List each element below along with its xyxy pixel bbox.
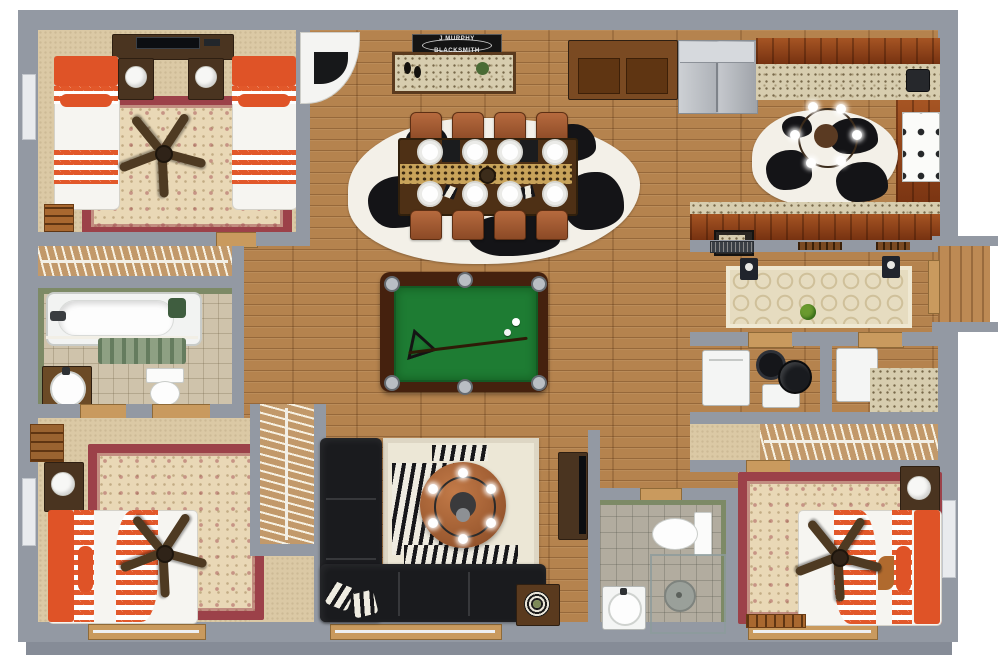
bathroom2-wall-right [726,488,738,622]
pool-pocket [457,379,473,395]
queen-bed-headboard [48,510,74,622]
foundation-edge [26,642,952,655]
hutch-door [626,58,668,94]
pool-pocket [384,375,400,391]
patio-door-frame [330,624,502,640]
queen-bed-pillow [78,546,93,592]
wine-bottle [414,66,421,78]
shower-drain [676,592,682,598]
twin-bed-left-blanket [54,56,118,86]
coffee-maker [906,69,930,92]
bathtub-basin [58,300,174,336]
wall-sconce [882,256,900,278]
air-vent [710,241,754,253]
utility-wall-bottom [690,412,938,424]
dinner-plate [462,139,488,165]
pool-pocket [531,276,547,292]
entry-wall-cap-top [932,236,998,246]
zebra-rug-panel [432,445,488,461]
sofa-seam [468,572,470,616]
dinner-plate [497,139,523,165]
bathroom1-wall-top [38,276,232,288]
light-bulb [836,104,846,114]
buffet-console [392,52,516,94]
window [942,500,956,578]
dinner-plate [497,181,523,207]
queen-bed-headboard [914,510,940,624]
utility-laundry-wall [820,346,832,412]
utility-door-threshold [748,332,794,348]
tub-faucet [50,311,66,321]
bedroom1-wall-bottom2 [256,232,310,246]
sofa-seam [326,498,376,500]
light-bulb [428,484,438,494]
entry-alcove [938,246,990,324]
sofa-seam [326,558,376,560]
light-bulb [790,130,800,140]
dinner-plate [417,181,443,207]
tv-screen [579,456,586,534]
light-center [814,124,838,148]
queen-bed-pillow [896,546,911,592]
sink-faucet [620,588,627,595]
light-bulb [458,468,468,478]
entry-door-threshold [928,260,940,314]
range-stove [902,112,940,182]
fridge-top [680,42,754,63]
fan-hub [155,145,173,163]
sconce-shade [745,263,753,271]
window [22,478,36,546]
hutch-door [578,58,620,94]
table-lamp [125,66,147,88]
fan-hub [831,549,849,567]
light-bulb [486,518,496,528]
bedroom3-wall-top-a [690,460,746,472]
window-frame [88,624,206,640]
centerpiece [479,167,496,184]
placemat [442,140,460,162]
wine-bottle [404,62,411,74]
toilet-bowl [150,381,180,406]
hallway-wall-bottom-a [690,332,748,346]
wall-shelf [30,424,64,462]
peninsula-counter-top [690,202,940,214]
dinner-plate [542,181,568,207]
cue-ball [512,318,520,326]
pool-pocket [531,375,547,391]
closet-band-hall [690,424,760,460]
foot-bench [746,614,806,628]
console-plant [476,62,489,75]
window-glass [753,630,871,633]
closet-wall-right [232,246,244,416]
water-heater [778,360,812,394]
closet-rod [285,408,288,540]
light-bulb [428,518,438,528]
dining-chair [494,210,526,240]
toilet-bowl [652,518,698,550]
billiard-ball [504,329,511,336]
dining-chair [536,210,568,240]
dinner-plate [542,139,568,165]
table-lamp [195,66,217,88]
dining-chair [452,210,484,240]
hallway-plant [800,304,816,320]
twin-bed-right-blanket [232,56,296,86]
bathroom1-wall-bottom-c [210,404,244,418]
window [22,74,36,140]
coat-hooks [876,242,910,250]
hallway-wall-bottom-c [902,332,938,346]
green-towel [168,298,186,318]
twin-bed-left-pillow [60,94,112,107]
bathroom1-wall-bottom-b [126,404,152,418]
window-glass [93,630,199,633]
closet2-wall-left [250,404,260,556]
twin-bed-right-pillow [238,94,290,107]
decorative-plate-center [533,600,541,608]
sign-line1: J MURPHY [413,36,501,42]
ceiling-fan [793,511,883,601]
patio-door-glass [335,630,495,633]
living-hall-wall [588,430,600,622]
hallway-wall-bottom-b [792,332,858,346]
light-bulb [852,130,862,140]
light-bulb [808,102,818,112]
pool-pocket [457,272,473,288]
shower-curtain [98,338,186,364]
table-lamp [51,472,75,496]
floor-plan: J MURPHY BLACKSMITH [0,0,1000,657]
washer [702,350,750,406]
bathroom1-wall-bottom-a [38,404,80,418]
dining-chair [410,210,442,240]
tv-screen [136,37,200,49]
sofa-seam [398,572,400,616]
sink-faucet [62,367,70,375]
light-bulb [836,156,846,166]
kitchen-upper-cabinets [756,38,940,64]
fan-hub [156,545,174,563]
light-bulb [486,484,496,494]
cowhide-patch [836,162,888,202]
dinner-plate [417,139,443,165]
bathroom1-sink [50,371,86,407]
outer-wall-top [18,10,958,30]
fridge-door-split [716,62,718,112]
chandelier-canopy [456,508,470,522]
pool-pocket [384,276,400,292]
twin-bed-right-chevron-foot [232,150,296,184]
coat-hooks [798,242,842,250]
laundry-door-threshold [858,332,904,348]
bathroom2-wall-accent [600,500,726,505]
sconce-shade [887,261,895,269]
table-lamp [907,476,931,500]
entry-wall-cap-bottom [932,322,998,332]
ceiling-fan [117,107,207,197]
laundry-counter [870,368,938,412]
bathroom2-sink [608,592,642,626]
light-bulb [806,158,816,168]
bedroom1-wall-bottom [38,232,216,246]
closet-rod [764,440,934,443]
wall-sconce [740,258,758,280]
light-bulb [458,534,468,544]
twin-bed-left-chevron-foot [54,150,118,184]
closet-rod [42,260,228,263]
media-device [204,39,220,46]
ceiling-fan [118,507,208,597]
dinner-plate [462,181,488,207]
closet2-wall-bottom [250,544,314,556]
washer-lid [709,359,743,361]
